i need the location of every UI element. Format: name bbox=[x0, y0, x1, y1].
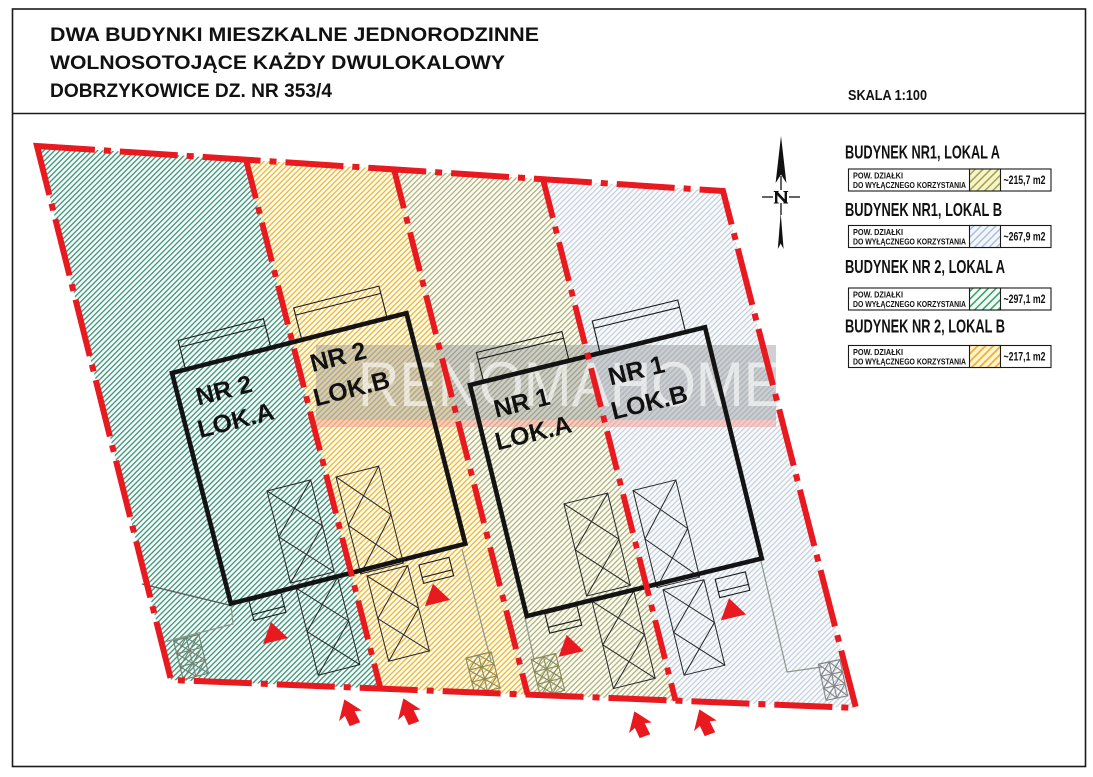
svg-text:~217,1 m2: ~217,1 m2 bbox=[1004, 352, 1046, 364]
svg-text:DO WYŁĄCZNEGO KORZYSTANIA: DO WYŁĄCZNEGO KORZYSTANIA bbox=[853, 300, 966, 309]
svg-text:DO WYŁĄCZNEGO KORZYSTANIA: DO WYŁĄCZNEGO KORZYSTANIA bbox=[853, 238, 966, 247]
svg-text:DO WYŁĄCZNEGO KORZYSTANIA: DO WYŁĄCZNEGO KORZYSTANIA bbox=[853, 181, 966, 190]
svg-text:BUDYNEK NR1, LOKAL B: BUDYNEK NR1, LOKAL B bbox=[845, 200, 1002, 220]
svg-text:~267,9 m2: ~267,9 m2 bbox=[1004, 232, 1046, 244]
svg-text:DOBRZYKOWICE DZ. NR 353/4: DOBRZYKOWICE DZ. NR 353/4 bbox=[50, 80, 332, 102]
svg-text:POW. DZIAŁKI: POW. DZIAŁKI bbox=[853, 348, 903, 357]
svg-text:DO WYŁĄCZNEGO KORZYSTANIA: DO WYŁĄCZNEGO KORZYSTANIA bbox=[853, 358, 966, 367]
svg-text:POW. DZIAŁKI: POW. DZIAŁKI bbox=[853, 291, 903, 300]
svg-text:POW. DZIAŁKI: POW. DZIAŁKI bbox=[853, 228, 903, 237]
svg-text:SKALA 1:100: SKALA 1:100 bbox=[848, 87, 927, 104]
svg-text:BUDYNEK NR 2, LOKAL A: BUDYNEK NR 2, LOKAL A bbox=[845, 257, 1005, 277]
svg-text:BUDYNEK NR1, LOKAL A: BUDYNEK NR1, LOKAL A bbox=[845, 143, 1000, 163]
svg-text:~215,7 m2: ~215,7 m2 bbox=[1004, 175, 1046, 187]
svg-text:WOLNOSOTOJĄCE KAŻDY DWULOKALOW: WOLNOSOTOJĄCE KAŻDY DWULOKALOWY bbox=[50, 51, 505, 74]
svg-text:BUDYNEK NR 2, LOKAL B: BUDYNEK NR 2, LOKAL B bbox=[845, 317, 1005, 337]
svg-text:POW. DZIAŁKI: POW. DZIAŁKI bbox=[853, 172, 903, 181]
svg-text:~297,1 m2: ~297,1 m2 bbox=[1004, 294, 1046, 306]
svg-text:DWA BUDYNKI MIESZKALNE JEDNORO: DWA BUDYNKI MIESZKALNE JEDNORODZINNE bbox=[50, 24, 539, 46]
